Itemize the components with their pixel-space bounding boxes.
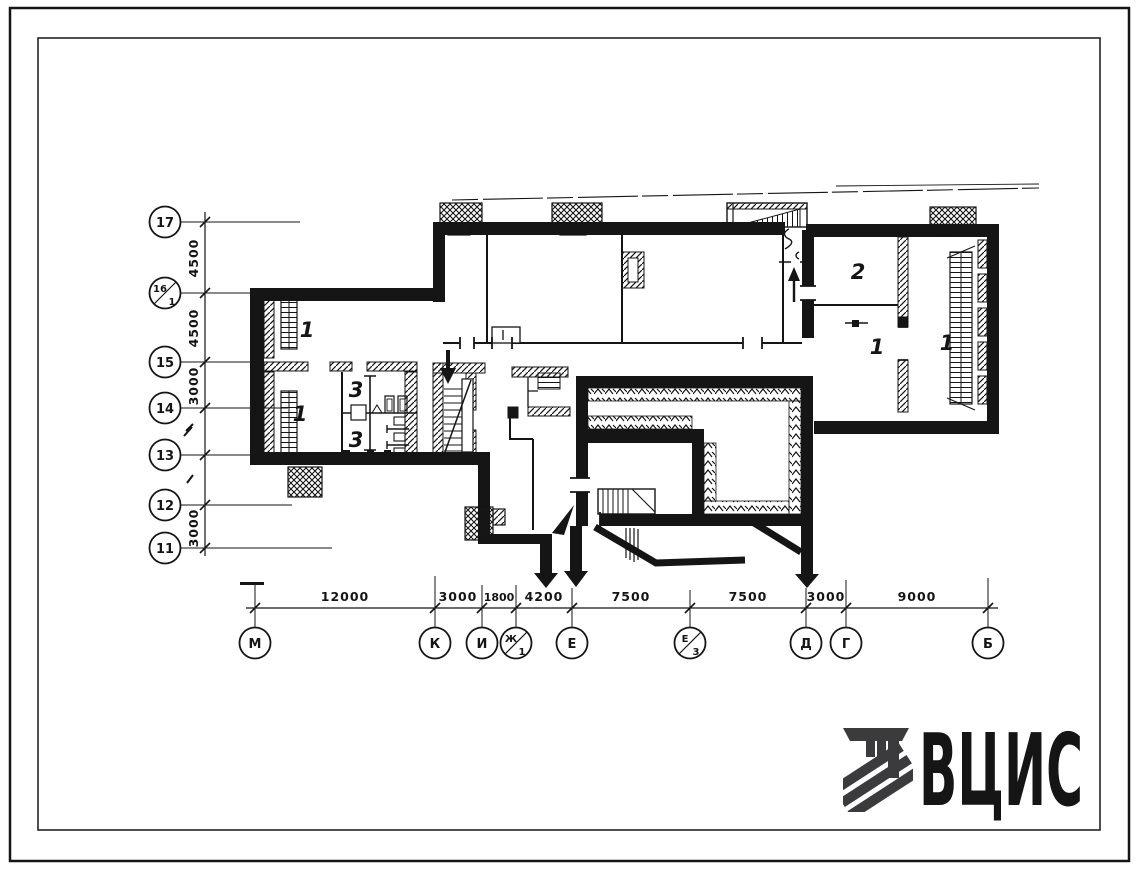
axis-text: М	[249, 637, 262, 652]
storage-rack	[947, 246, 975, 410]
room-label: 3	[349, 428, 364, 452]
axis-text: Г	[842, 637, 850, 652]
dim-value: 3000	[807, 589, 846, 604]
dim-value: 9000	[898, 589, 937, 604]
axis-circle-slash	[505, 632, 701, 654]
foundation-block	[465, 507, 493, 540]
axis-text: Ж	[505, 634, 518, 645]
dim-value: 12000	[321, 589, 370, 604]
room-label: 1	[300, 318, 315, 342]
axis-text: 14	[156, 402, 174, 417]
entrance-up-arrow	[788, 267, 800, 302]
bottom-axis: М К И Ж 1 Е Е 3 Д Г Б 12000 3000 1800 42…	[240, 576, 1004, 659]
axis-text: 12	[156, 499, 174, 514]
axis-text: Е	[682, 634, 689, 645]
room-label: 1	[293, 402, 308, 426]
axis-text: 3	[693, 647, 700, 658]
subroom-stair	[598, 489, 655, 514]
axis-text: 15	[156, 356, 174, 371]
axis-text: Б	[983, 637, 993, 652]
room-label: 2	[851, 260, 866, 284]
foundation-block	[288, 467, 322, 497]
axis-text: 1	[519, 647, 526, 658]
axis-text: Е	[568, 637, 577, 652]
dim-value: 4500	[186, 309, 201, 348]
left-axis: 17 16 1 15 14 13 12 11 4500 4500 3000 30…	[150, 207, 333, 564]
dim-value: 7500	[612, 589, 651, 604]
logo-text: ВЦИС	[919, 712, 1083, 829]
main-staircase	[444, 379, 473, 452]
column-marker	[852, 320, 859, 327]
stairs	[444, 203, 807, 514]
room-label: 1	[940, 331, 955, 355]
axis-text: К	[430, 637, 441, 652]
room-label: 1	[870, 335, 885, 359]
door-jambs	[460, 286, 908, 530]
dim-value: 4200	[525, 589, 564, 604]
blueprint-sheet: 1 1 3 3 2 1 1	[0, 0, 1139, 869]
corridor-stair	[528, 373, 560, 407]
logo: ВЦИС	[831, 712, 1083, 829]
dim-value: 4500	[186, 239, 201, 278]
vcis-emblem-icon	[831, 728, 920, 820]
arrows	[440, 267, 800, 384]
axis-text: И	[477, 637, 488, 652]
dim-value: 7500	[729, 589, 768, 604]
handwritten-marks	[184, 424, 193, 483]
dim-value: 3000	[186, 509, 201, 548]
dim-value: 1800	[484, 591, 515, 604]
dim-value: 3000	[439, 589, 478, 604]
ground-line	[452, 184, 1039, 200]
axis-text: 1	[169, 297, 176, 308]
dim-value: 3000	[186, 367, 201, 406]
axis-text: 17	[156, 216, 174, 231]
axis-text: 16	[153, 284, 167, 295]
room-label: 3	[349, 378, 364, 402]
axis-text: 11	[156, 542, 174, 557]
axis-text: Д	[800, 637, 812, 652]
floor-plan: 1 1 3 3 2 1 1	[240, 184, 1039, 588]
axis-text: 13	[156, 449, 174, 464]
